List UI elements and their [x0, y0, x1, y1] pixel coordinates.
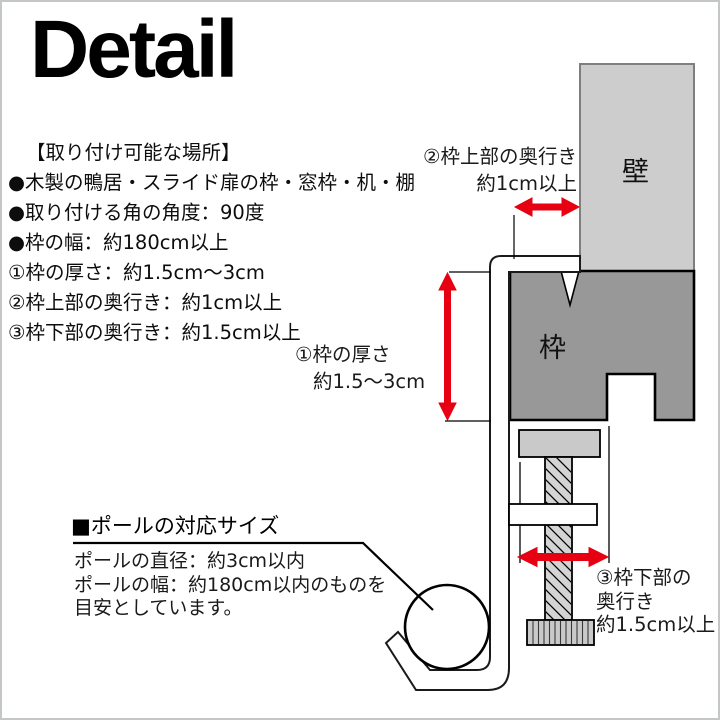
- pole-size-heading: ■ポールの対応サイズ: [71, 510, 279, 540]
- frame-shape: [510, 271, 694, 420]
- info-line: ②枠上部の奥行き：約1cm以上: [8, 288, 415, 318]
- frame-label: 枠: [539, 326, 566, 365]
- clamp-arm-shape: [509, 504, 597, 525]
- wall-label: 壁: [622, 150, 649, 189]
- dim2-label: ②枠上部の奥行き 約1cm以上: [410, 143, 577, 197]
- info-line: ●取り付ける角の角度：90度: [8, 198, 415, 228]
- knob-shape: [527, 620, 594, 645]
- product-detail-page: Detail 【取り付け可能な場所】 ●木製の鴨居・スライド扉の枠・窓枠・机・棚…: [0, 0, 720, 720]
- info-line: ●枠の幅：約180cm以上: [8, 228, 415, 258]
- clamp-pad-shape: [519, 430, 600, 457]
- dim3-label: ③枠下部の 奥行き 約1.5cm以上: [596, 566, 715, 637]
- info-line: ●木製の鴨居・スライド扉の枠・窓枠・机・棚: [8, 168, 415, 198]
- pole-detail-line: 目安としています。: [74, 597, 386, 621]
- dim1-extension-lines: [445, 272, 491, 421]
- screw-rod-shape: [545, 446, 572, 638]
- installation-info-list: 【取り付け可能な場所】 ●木製の鴨居・スライド扉の枠・窓枠・机・棚 ●取り付ける…: [8, 138, 415, 348]
- pole-size-details: ポールの直径：約3cm以内 ポールの幅：約180cm以内のものを 目安としていま…: [74, 550, 386, 621]
- pole-circle-shape: [405, 585, 489, 669]
- pole-detail-line: ポールの直径：約3cm以内: [74, 550, 386, 574]
- dim1-label: ①枠の厚さ 約1.5～3cm: [295, 342, 425, 395]
- page-title: Detail: [30, 2, 235, 98]
- dim2-arrow: [515, 198, 579, 216]
- pole-detail-line: ポールの幅：約180cm以内のものを: [74, 574, 386, 598]
- info-heading: 【取り付け可能な場所】: [26, 138, 415, 168]
- info-line: ①枠の厚さ：約1.5cm～3cm: [8, 258, 415, 288]
- dim1-arrow: [439, 273, 456, 420]
